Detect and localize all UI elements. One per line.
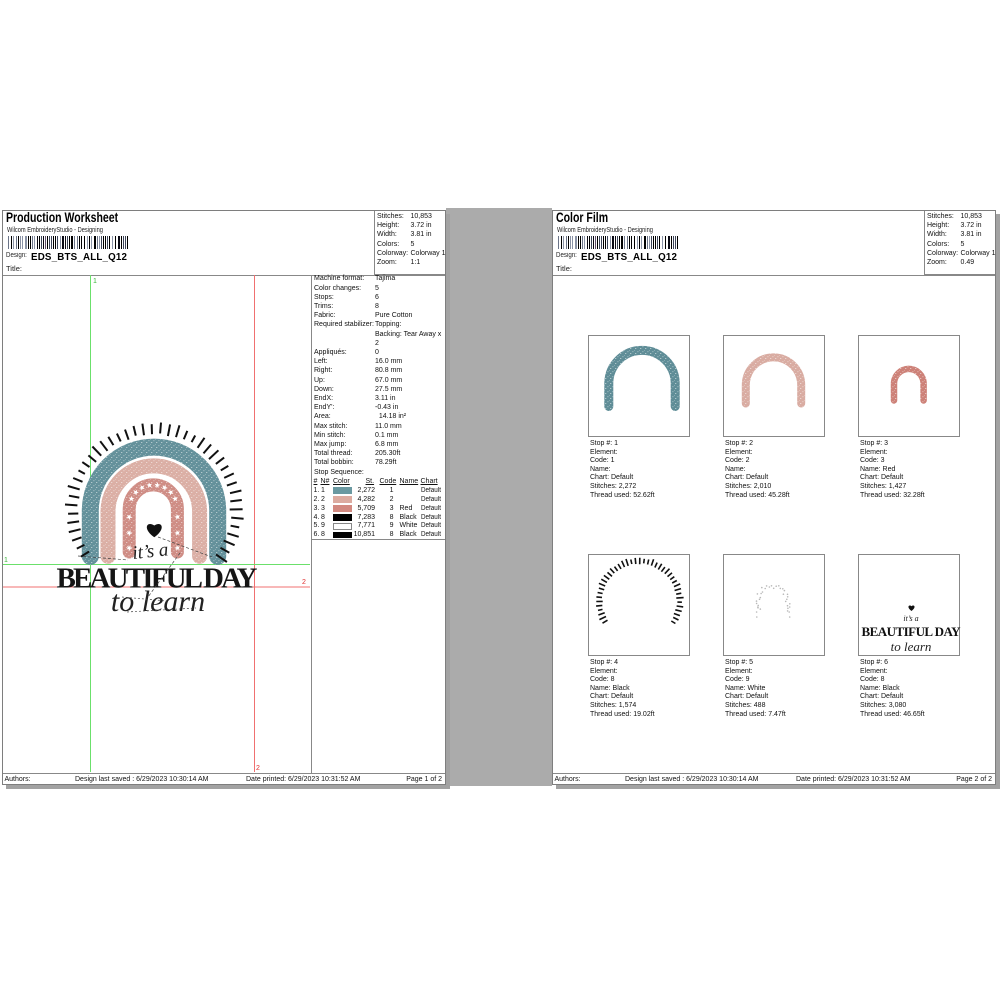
svg-text:it’s a: it’s a — [131, 539, 169, 564]
svg-text:it’s a: it’s a — [903, 614, 918, 623]
svg-text:to learn: to learn — [891, 639, 932, 654]
svg-text:2: 2 — [302, 579, 306, 586]
svg-text:BEAUTIFUL DAY: BEAUTIFUL DAY — [862, 624, 962, 639]
svg-text:2: 2 — [256, 765, 260, 772]
svg-text:1: 1 — [4, 557, 8, 564]
svg-text:to learn: to learn — [111, 585, 205, 618]
svg-text:1: 1 — [93, 278, 97, 285]
